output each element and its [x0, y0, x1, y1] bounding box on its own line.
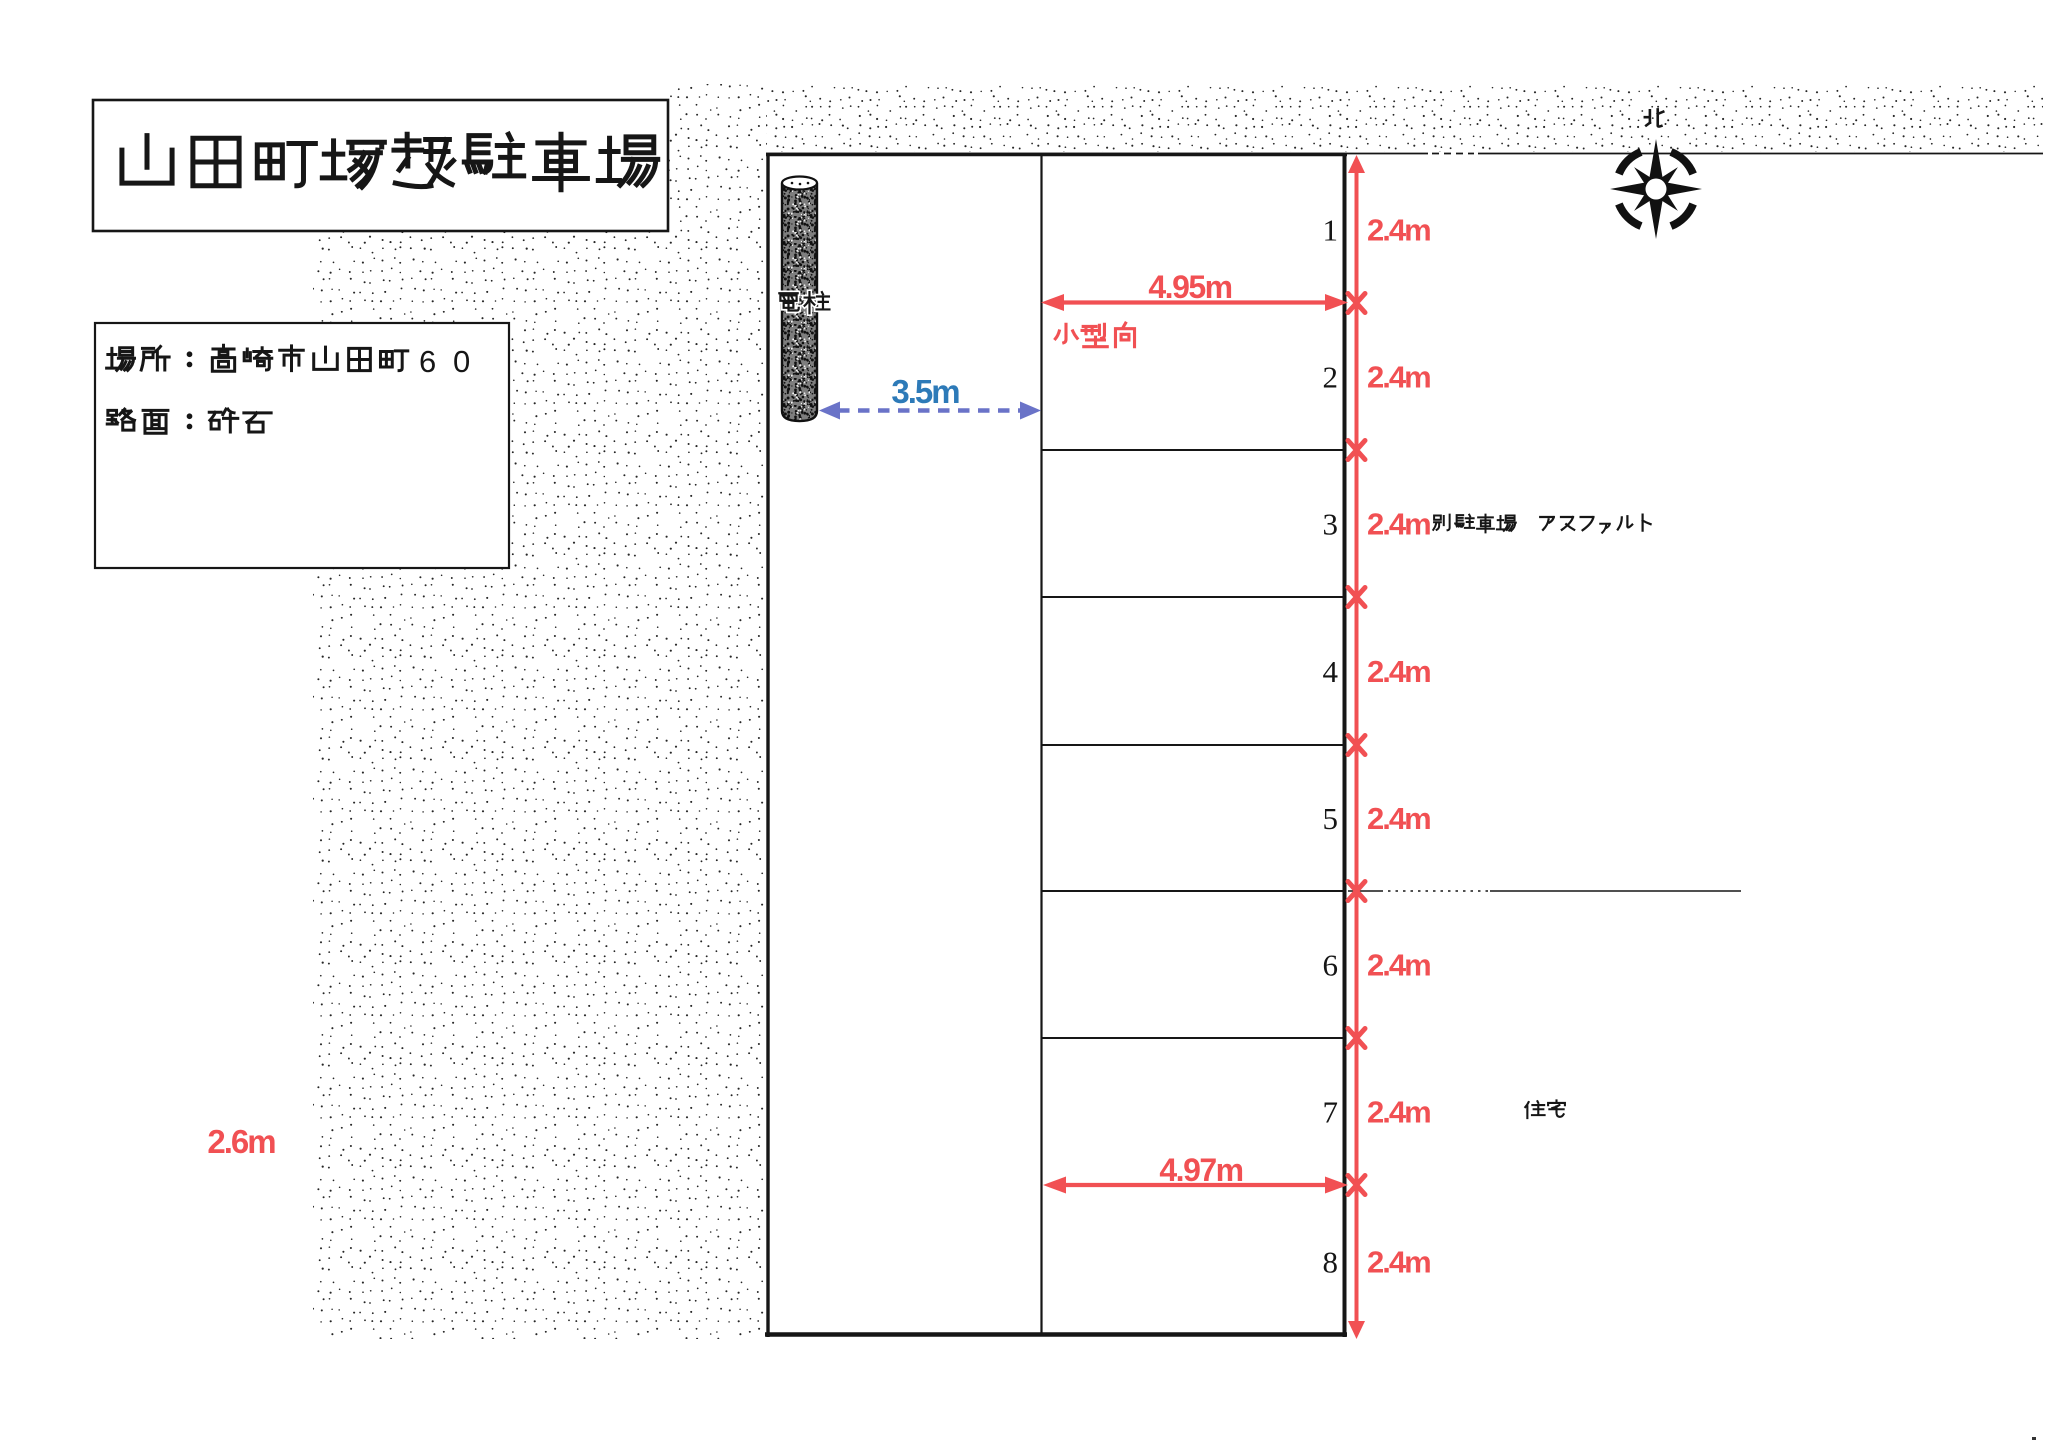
svg-text:5: 5 [1323, 801, 1339, 836]
svg-text:8: 8 [1323, 1245, 1339, 1280]
svg-text:4.95m: 4.95m [1148, 269, 1231, 305]
svg-text:2.4m: 2.4m [1367, 507, 1430, 542]
svg-text:2.4m: 2.4m [1367, 360, 1430, 395]
svg-text:2.4m: 2.4m [1367, 948, 1430, 983]
svg-text:3.5m: 3.5m [891, 373, 959, 410]
svg-text:0: 0 [453, 344, 470, 379]
svg-text:2.4m: 2.4m [1367, 213, 1430, 248]
svg-text:4.97m: 4.97m [1159, 1152, 1242, 1188]
svg-text:6: 6 [1323, 948, 1339, 983]
svg-text:4: 4 [1323, 654, 1339, 689]
svg-text:2: 2 [1323, 360, 1339, 395]
svg-text:1: 1 [1323, 213, 1339, 248]
svg-text:2.6m: 2.6m [207, 1123, 275, 1160]
svg-text:6: 6 [419, 344, 436, 379]
svg-text:2.4m: 2.4m [1367, 1095, 1430, 1130]
svg-text:2.4m: 2.4m [1367, 801, 1430, 836]
svg-text:7: 7 [1323, 1095, 1339, 1130]
svg-text:2.4m: 2.4m [1367, 1245, 1430, 1280]
svg-text:2.4m: 2.4m [1367, 654, 1430, 689]
svg-text:3: 3 [1323, 507, 1339, 542]
